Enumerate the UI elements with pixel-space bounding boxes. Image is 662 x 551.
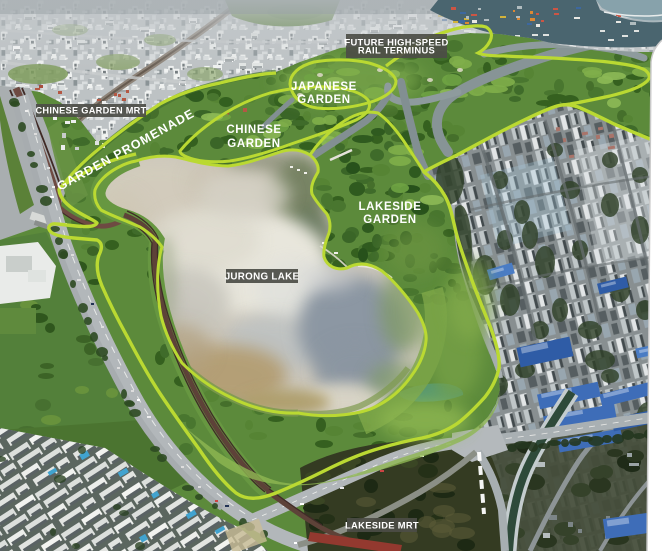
svg-text:JAPANESE: JAPANESE xyxy=(291,81,357,93)
svg-text:CHINESE GARDEN MRT: CHINESE GARDEN MRT xyxy=(35,106,146,116)
svg-text:CHINESE: CHINESE xyxy=(226,124,281,136)
svg-text:RAIL TERMINUS: RAIL TERMINUS xyxy=(358,44,435,55)
svg-text:LAKESIDE: LAKESIDE xyxy=(359,201,422,213)
svg-text:GARDEN: GARDEN xyxy=(363,214,416,226)
svg-text:JURONG LAKE: JURONG LAKE xyxy=(225,271,300,282)
svg-text:LAKESIDE MRT: LAKESIDE MRT xyxy=(345,519,419,530)
svg-text:GARDEN: GARDEN xyxy=(297,94,350,106)
svg-text:GARDEN: GARDEN xyxy=(227,138,280,150)
